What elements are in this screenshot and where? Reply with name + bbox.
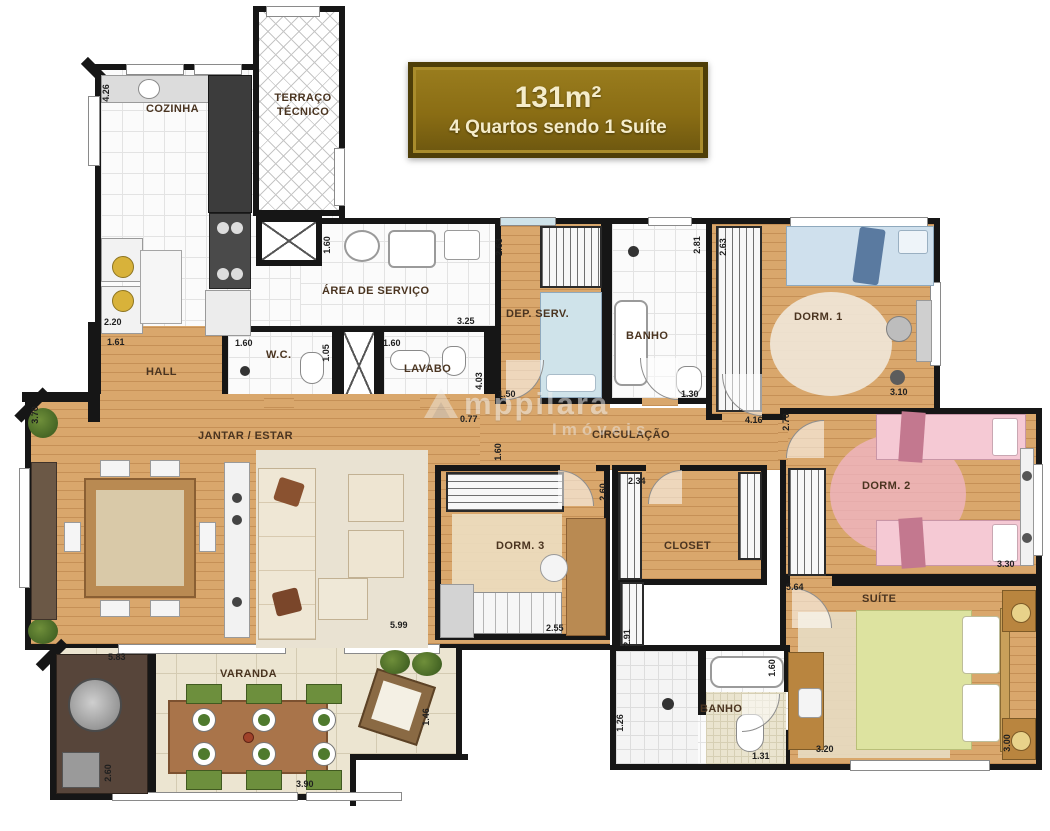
badge-area-text: 131m² <box>515 81 602 115</box>
dimension-label: 3.20 <box>816 744 834 754</box>
dimension-label: 2.81 <box>692 236 702 254</box>
dimension-label: 3.10 <box>890 387 908 397</box>
floor-plan: COZINHATERRAÇO TÉCNICOÁREA DE SERVIÇOHAL… <box>0 0 1050 831</box>
dimension-label: 5.83 <box>108 652 126 662</box>
dimension-label: 1.05 <box>321 344 331 362</box>
dimension-label: 3.30 <box>997 559 1015 569</box>
room-label-cozinha: COZINHA <box>146 103 199 115</box>
dimension-label: 3.25 <box>457 316 475 326</box>
room-label-area-servico: ÁREA DE SERVIÇO <box>322 285 429 297</box>
dimension-label: 2.60 <box>598 483 608 501</box>
dimension-label: 3.00 <box>1002 734 1012 752</box>
dimension-label: 2.63 <box>718 238 728 256</box>
dimension-label: 1.60 <box>235 338 253 348</box>
room-label-jantar-estar: JANTAR / ESTAR <box>198 430 293 442</box>
dimension-label: 1.50 <box>498 389 516 399</box>
dimension-label: 5.99 <box>390 620 408 630</box>
dimension-label: 0.77 <box>460 414 478 424</box>
room-label-varanda: VARANDA <box>220 668 277 680</box>
badge-subtitle-text: 4 Quartos sendo 1 Suíte <box>449 117 667 139</box>
dimension-label: 1.60 <box>322 236 332 254</box>
room-label-wc: W.C. <box>266 349 291 361</box>
room-label-banho-social: BANHO <box>626 330 668 342</box>
room-label-dorm-1: DORM. 1 <box>794 311 843 323</box>
dimension-label: 3.90 <box>296 779 314 789</box>
area-badge: 131m² 4 Quartos sendo 1 Suíte <box>408 62 708 158</box>
dimension-label: 2.60 <box>103 764 113 782</box>
dimension-label: 1.31 <box>752 751 770 761</box>
room-label-circulacao: CIRCULAÇÃO <box>592 429 670 441</box>
dimension-label: 1.30 <box>681 389 699 399</box>
dimension-label: 4.16 <box>745 415 763 425</box>
dimension-label: 1.26 <box>615 714 625 732</box>
dimension-label: 4.26 <box>101 84 111 102</box>
room-label-hall: HALL <box>146 366 177 378</box>
room-label-suite: SUÍTE <box>862 593 896 605</box>
dimension-label: 4.03 <box>474 372 484 390</box>
room-label-banho-suite: BANHO <box>700 703 742 715</box>
dimension-label: 1.60 <box>383 338 401 348</box>
dimension-label: 3.70 <box>30 406 40 424</box>
room-label-closet: CLOSET <box>664 540 711 552</box>
dimension-label: 2.55 <box>546 623 564 633</box>
room-label-dep-serv: DEP. SERV. <box>506 308 569 320</box>
dimension-label: 1.60 <box>767 659 777 677</box>
dimension-label: 1.60 <box>493 443 503 461</box>
dimension-label: 5.64 <box>786 582 804 592</box>
dimension-label: 2.34 <box>628 476 646 486</box>
dimension-label: 2.20 <box>104 317 122 327</box>
dimension-label: 1.46 <box>421 708 431 726</box>
dimension-label: 2.70 <box>781 413 791 431</box>
dimension-label: 1.61 <box>107 337 125 347</box>
dimension-label: 2.91 <box>622 629 632 647</box>
dimension-label: 2.63 <box>494 238 504 256</box>
room-label-dorm-3: DORM. 3 <box>496 540 545 552</box>
room-label-dorm-2: DORM. 2 <box>862 480 911 492</box>
room-label-lavabo: LAVABO <box>404 363 451 375</box>
room-label-terraco-tecnico: TERRAÇO TÉCNICO <box>266 92 340 120</box>
